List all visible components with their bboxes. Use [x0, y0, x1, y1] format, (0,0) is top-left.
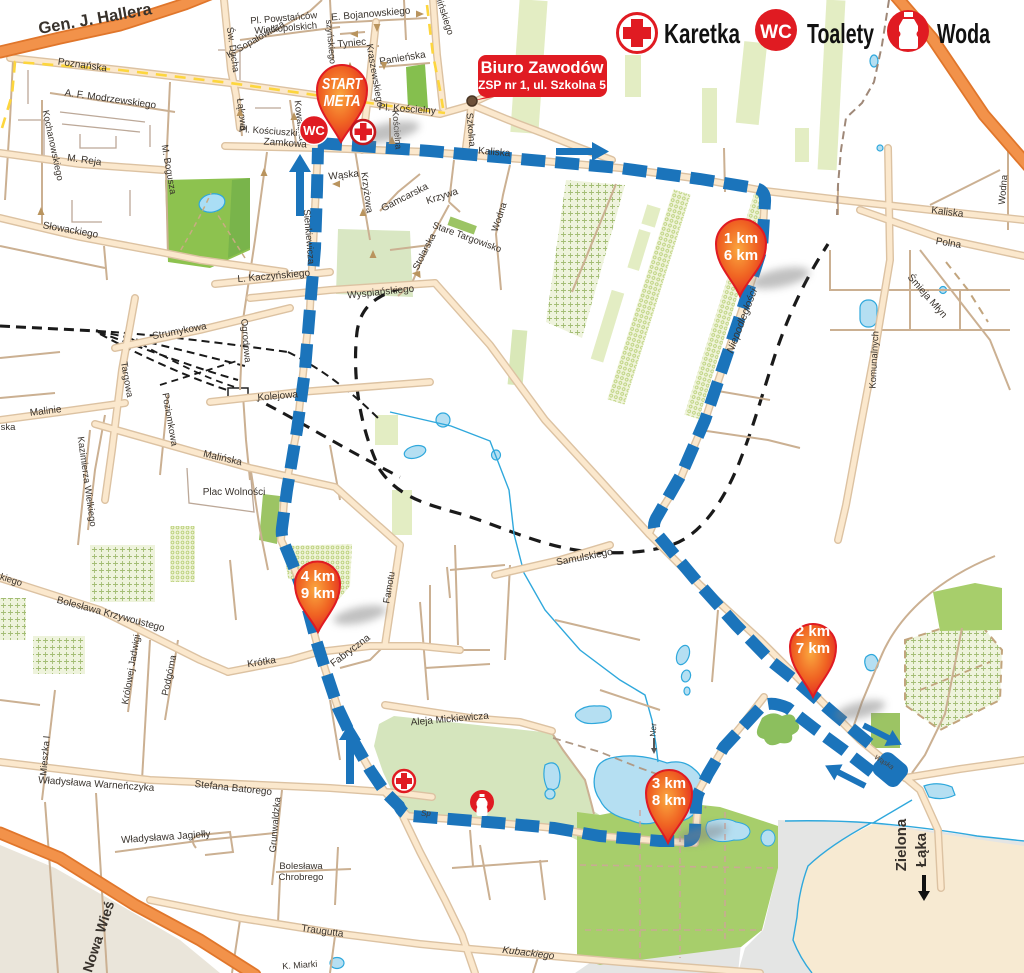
- svg-text:Woda: Woda: [937, 18, 990, 49]
- svg-text:9 km: 9 km: [301, 585, 335, 602]
- svg-text:3 km: 3 km: [652, 775, 686, 792]
- svg-text:Chrobrego: Chrobrego: [279, 872, 324, 883]
- svg-text:WC: WC: [303, 123, 325, 138]
- svg-text:Bolesława: Bolesława: [279, 861, 323, 872]
- svg-text:Toalety: Toalety: [807, 18, 874, 49]
- svg-text:Ner: Ner: [648, 723, 659, 737]
- svg-text:ZSP nr 1, ul. Szkolna 5: ZSP nr 1, ul. Szkolna 5: [478, 78, 606, 92]
- svg-text:WC: WC: [760, 22, 792, 43]
- svg-text:START: START: [322, 76, 363, 93]
- svg-text:2 km: 2 km: [796, 623, 830, 640]
- svg-text:6 km: 6 km: [724, 247, 758, 264]
- svg-text:1 km: 1 km: [724, 230, 758, 247]
- svg-text:Biuro Zawodów: Biuro Zawodów: [481, 59, 604, 77]
- svg-text:Zielona: Zielona: [893, 818, 910, 871]
- svg-text:Łąka: Łąka: [913, 832, 930, 867]
- svg-text:META: META: [324, 93, 361, 110]
- svg-text:ska: ska: [1, 422, 17, 433]
- svg-text:Karetka: Karetka: [664, 18, 740, 49]
- svg-text:8 km: 8 km: [652, 792, 686, 809]
- svg-text:4 km: 4 km: [301, 568, 335, 585]
- svg-text:7 km: 7 km: [796, 640, 830, 657]
- svg-text:Sp: Sp: [421, 809, 431, 818]
- svg-text:Plac Wolności: Plac Wolności: [203, 487, 266, 498]
